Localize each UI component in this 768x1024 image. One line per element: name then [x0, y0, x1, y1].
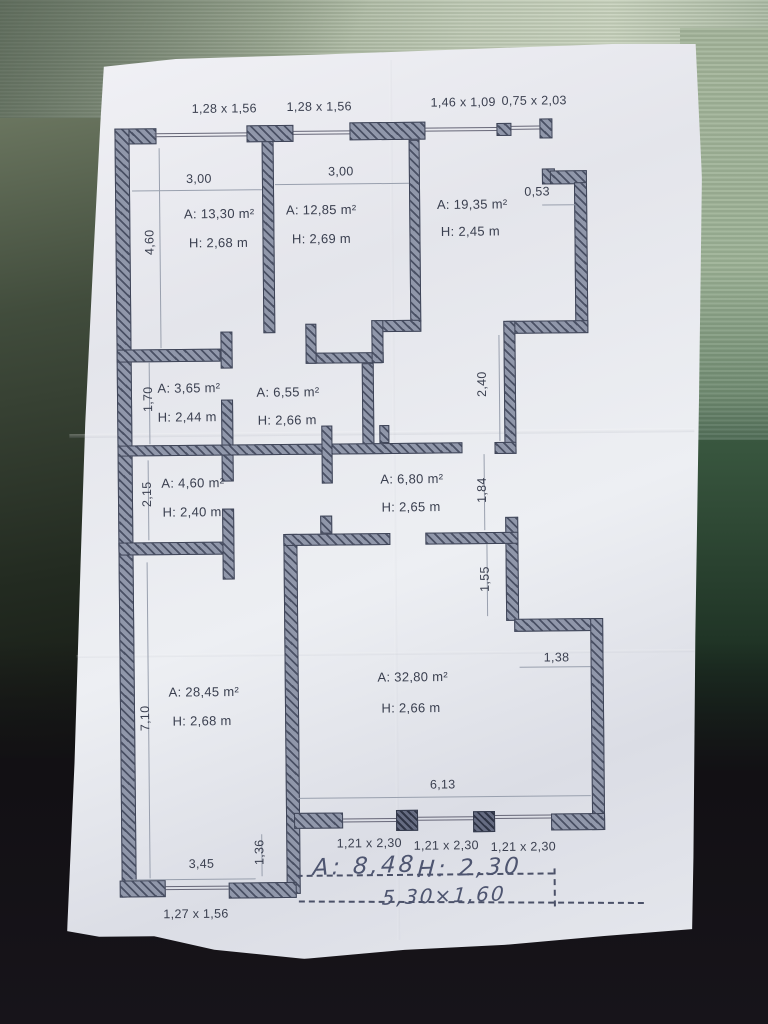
wall	[220, 332, 232, 369]
dimension-label: 6,13	[430, 777, 456, 791]
wall	[409, 140, 422, 322]
window-pier	[473, 811, 495, 832]
dimension-label: 1,84	[475, 477, 489, 503]
room-height-label: H: 2,68 m	[189, 235, 248, 251]
wall	[222, 508, 235, 579]
wall	[590, 618, 605, 830]
dimension-label: 1,36	[252, 839, 266, 865]
wall	[221, 400, 234, 482]
wall	[117, 349, 221, 363]
wall	[379, 425, 389, 443]
dimension-label: 1,55	[478, 566, 492, 592]
wall	[320, 516, 332, 534]
room-height-label: H: 2,40 m	[163, 504, 222, 520]
wall	[362, 363, 375, 453]
room-height-label: H: 2,66 m	[381, 700, 440, 716]
window-size-label: 1,46 x 1,09	[431, 95, 496, 110]
wall	[305, 324, 316, 364]
paper-group: 1,28 x 1,56 1,28 x 1,56 1,46 x 1,09 0,75…	[0, 0, 768, 1024]
window-line	[343, 818, 396, 823]
dimension-label: 1,38	[544, 650, 570, 664]
window-size-label: 1,27 x 1,56	[163, 907, 228, 922]
dimension-label: 3,00	[328, 164, 354, 178]
room-area-label: A: 19,35 m²	[437, 196, 508, 212]
room-area-label: A: 12,85 m²	[286, 202, 357, 218]
room-area-label: A: 13,30 m²	[184, 206, 255, 222]
room-height-label: H: 2,65 m	[381, 499, 440, 515]
room-height-label: H: 2,45 m	[441, 223, 500, 239]
wall	[262, 141, 276, 333]
wall	[283, 533, 390, 546]
room-area-label: A: 6,80 m²	[380, 471, 443, 487]
window-size-label: 1,21 x 2,30	[337, 836, 402, 851]
handwritten-height-note: H: 2,30	[416, 853, 522, 883]
window-line	[511, 126, 539, 130]
wall	[514, 618, 594, 632]
wall	[574, 182, 588, 332]
window-line	[495, 814, 551, 819]
window-line	[293, 130, 349, 135]
dimension-label: 0,53	[524, 184, 550, 198]
wall	[506, 320, 588, 334]
wall	[294, 812, 343, 828]
window-size-label: 0,75 x 2,03	[502, 93, 567, 108]
handwritten-size-note: 5,30×1,60	[381, 881, 506, 910]
wall	[349, 122, 425, 141]
room-area-label: A: 6,55 m²	[256, 384, 319, 400]
room-height-label: H: 2,68 m	[173, 713, 232, 729]
window-size-label: 1,21 x 2,30	[414, 838, 479, 853]
room-height-label: H: 2,69 m	[292, 231, 351, 247]
wall	[503, 321, 516, 454]
handwritten-area-note: A: 8,48	[312, 851, 417, 881]
room-area-label: A: 4,60 m²	[161, 475, 224, 491]
wall	[539, 118, 552, 138]
dimension-label: 1,70	[141, 386, 155, 412]
window-line	[425, 127, 496, 132]
wall	[425, 532, 518, 545]
window-size-label: 1,28 x 1,56	[192, 101, 257, 116]
window-pier	[396, 810, 418, 831]
wall	[229, 882, 297, 899]
dimension-label: 3,00	[186, 172, 212, 186]
dimension-label: 3,45	[189, 857, 215, 871]
wall	[494, 442, 516, 454]
window-size-label: 1,28 x 1,56	[287, 99, 352, 114]
wall	[321, 426, 333, 484]
wall	[246, 125, 293, 142]
room-area-label: A: 3,65 m²	[157, 380, 220, 396]
room-height-label: H: 2,44 m	[158, 409, 217, 425]
floor-plan-photo: 1,28 x 1,56 1,28 x 1,56 1,46 x 1,09 0,75…	[0, 0, 768, 1024]
dimension-label: 2,40	[475, 371, 489, 397]
room-height-label: H: 2,66 m	[258, 412, 317, 428]
wall	[551, 813, 605, 831]
wall	[371, 320, 383, 363]
wall	[120, 880, 166, 897]
wall	[118, 542, 223, 556]
room-area-label: A: 32,80 m²	[377, 669, 448, 685]
room-area-label: A: 28,45 m²	[169, 684, 240, 700]
dimension-label: 2,15	[140, 482, 154, 508]
window-line	[166, 886, 229, 891]
window-line	[418, 816, 473, 821]
dimension-label: 4,60	[142, 229, 156, 255]
dimension-label: 7,10	[138, 706, 152, 732]
window-size-label: 1,21 x 2,30	[491, 839, 556, 854]
wall	[496, 123, 511, 136]
